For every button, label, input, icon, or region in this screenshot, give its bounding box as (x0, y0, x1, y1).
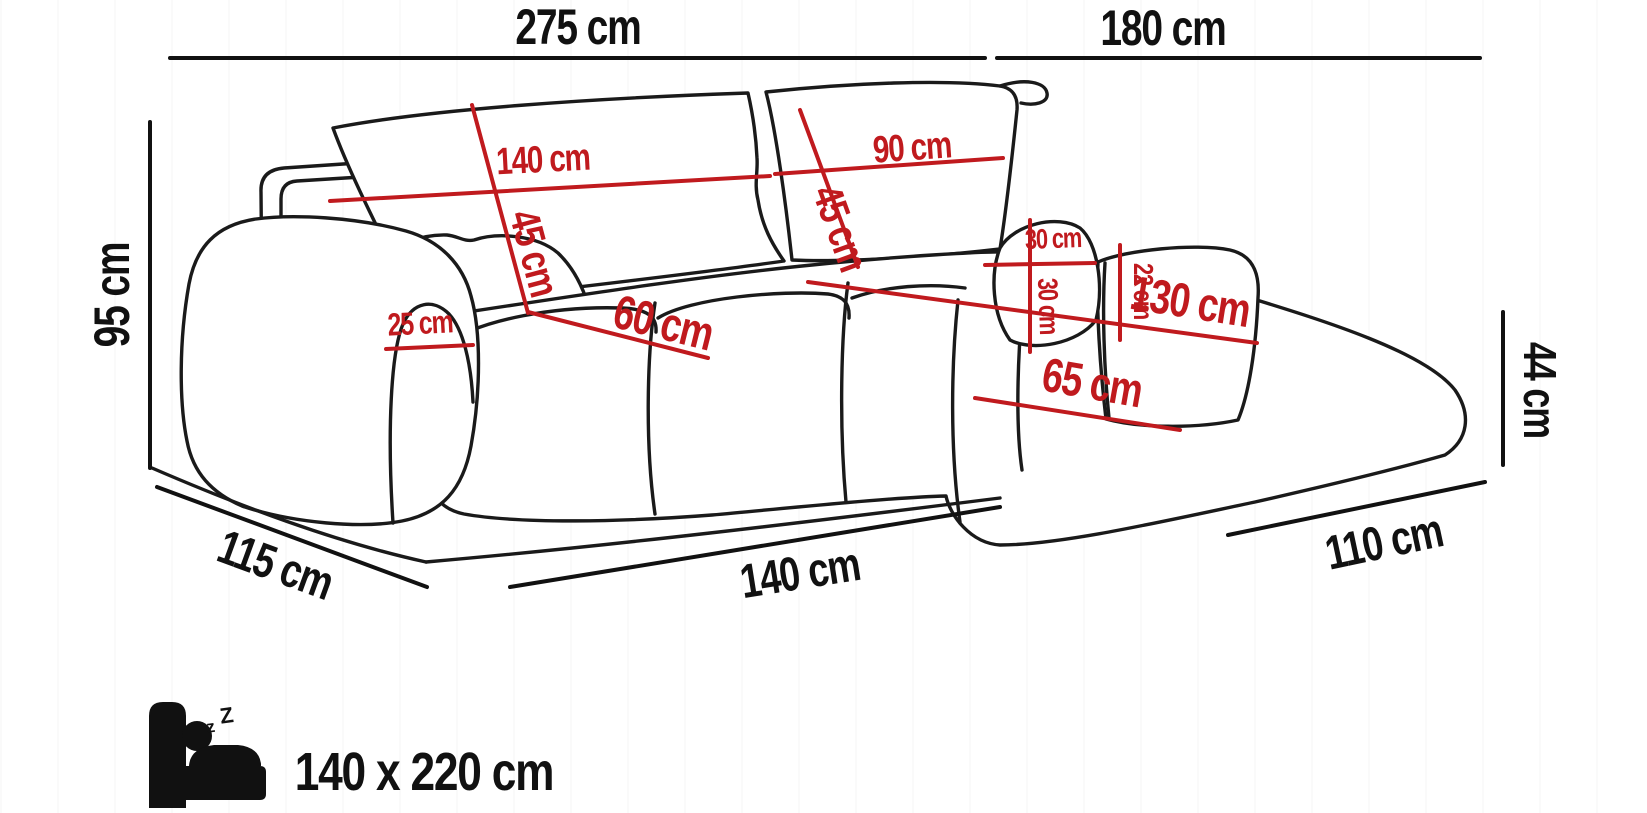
dim-line-pillow-width (985, 263, 1095, 265)
armrest-left (181, 217, 478, 525)
dim-label-armrest-width: 25 cm (387, 305, 454, 340)
dim-label-pillow-height: 30 cm (1033, 277, 1063, 334)
dim-label-back-right-width: 90 cm (872, 126, 953, 169)
bed-base (149, 766, 266, 800)
sofa-dimension-diagram: 275 cm 180 cm 95 cm 44 cm 115 cm 140 cm … (0, 0, 1647, 813)
dim-label-height: 95 cm (87, 243, 137, 348)
dim-label-pillow-width: 30 cm (1024, 224, 1081, 254)
seat-and-chaise (428, 252, 1465, 545)
sofa-line-drawing (0, 0, 1647, 813)
dim-label-top-left-width: 275 cm (515, 2, 640, 52)
dim-label-seat-height: 44 cm (1517, 342, 1563, 438)
dim-label-back-left-width: 140 cm (495, 139, 590, 182)
sleeping-size-label: 140 x 220 cm (295, 745, 554, 799)
dim-label-top-right-width: 180 cm (1100, 3, 1225, 53)
sofa-outline (152, 82, 1465, 562)
dim-label-armrest-right-height: 22 cm (1129, 263, 1157, 319)
